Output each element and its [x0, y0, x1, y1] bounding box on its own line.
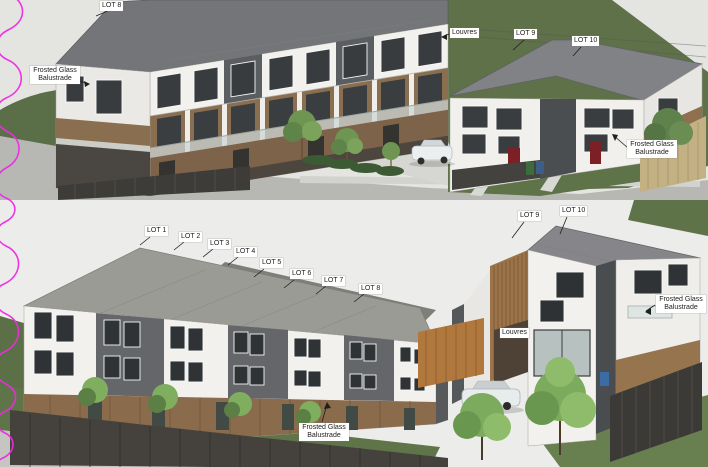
dark-cladding-band: [540, 99, 576, 179]
label-lot-6: LOT 6: [290, 269, 313, 279]
label-lot-8-top: LOT 8: [100, 1, 123, 11]
blue-bin: [600, 372, 609, 386]
label-lot-5: LOT 5: [260, 258, 283, 268]
label-lot-7: LOT 7: [322, 276, 345, 286]
label-frosted-glass-balustrade-front: Frosted Glass Balustrade: [299, 423, 349, 441]
label-lot-1: LOT 1: [145, 226, 168, 236]
label-frosted-glass-balustrade-top-right: Frosted Glass Balustrade: [627, 140, 677, 158]
bottom-view-render: [0, 200, 708, 467]
green-bin: [526, 162, 534, 175]
label-lot-4: LOT 4: [234, 247, 257, 257]
label-lot-9-top: LOT 9: [514, 29, 537, 39]
blue-bin: [536, 161, 544, 174]
label-lot-9-bottom: LOT 9: [518, 211, 541, 221]
entry-door: [590, 142, 601, 164]
label-frosted-glass-balustrade-top-left: Frosted Glass Balustrade: [30, 66, 80, 84]
label-lot-2: LOT 2: [179, 232, 202, 242]
label-louvres-top: Louvres: [450, 28, 479, 38]
label-lot-3: LOT 3: [208, 239, 231, 249]
label-louvres-bottom: Louvres: [500, 328, 529, 338]
architectural-render-page: LOT 8 Frosted Glass Balustrade Louvres L…: [0, 0, 708, 467]
top-view-render: [0, 0, 708, 200]
label-lot-10-bottom: LOT 10: [560, 206, 587, 216]
label-frosted-glass-balustrade-bottom-right: Frosted Glass Balustrade: [656, 295, 706, 313]
label-lot-8-bottom: LOT 8: [359, 284, 382, 294]
render-scene: [0, 0, 708, 467]
label-lot-10-top: LOT 10: [572, 36, 599, 46]
